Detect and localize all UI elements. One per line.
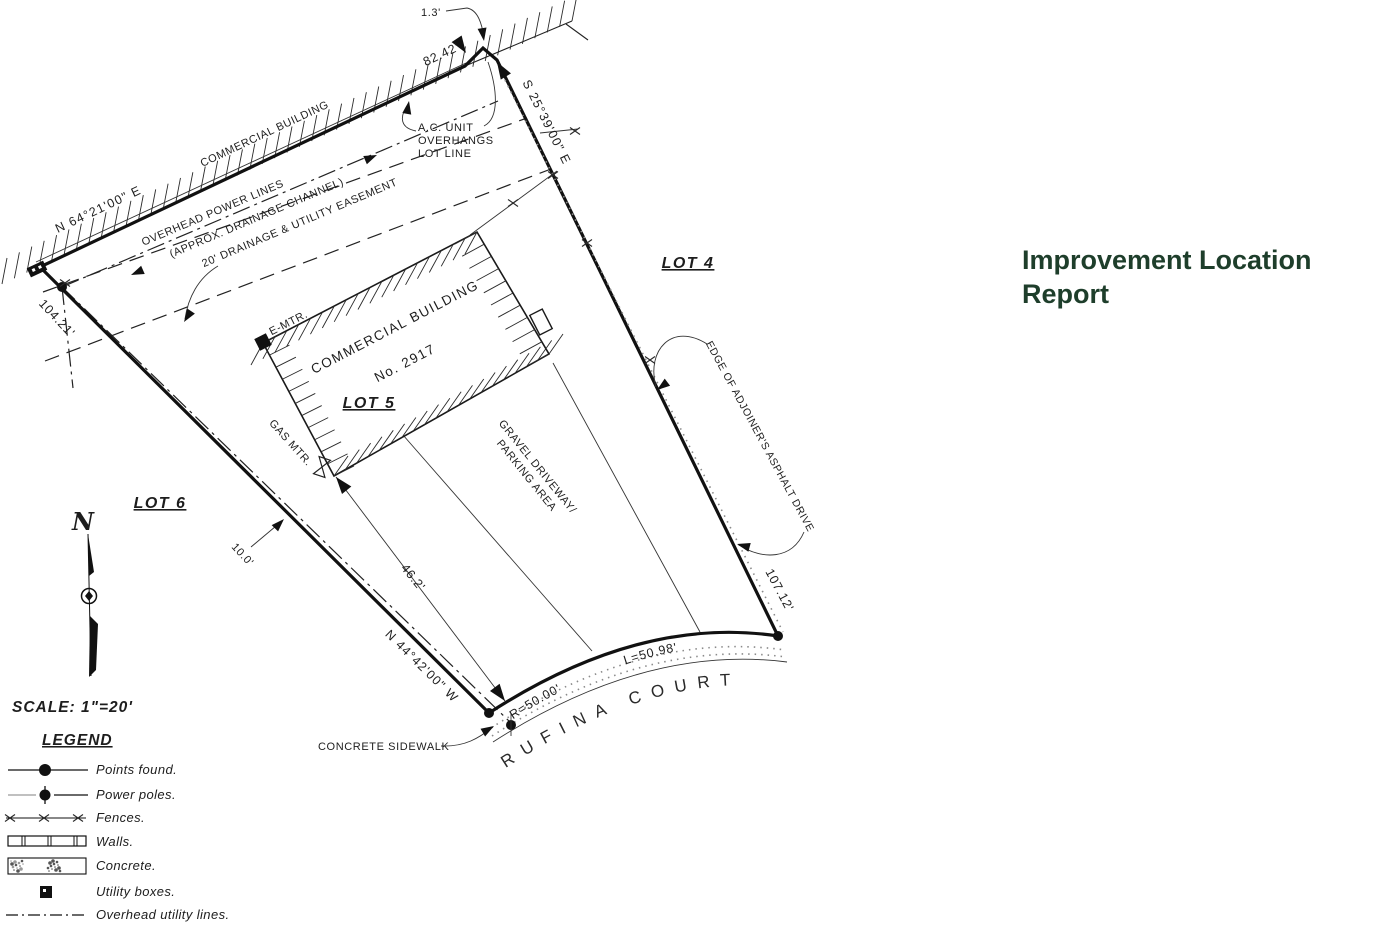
north-arrow: N — [71, 507, 98, 677]
lot5-label: LOT 5 — [343, 395, 396, 412]
legend-item-utility-boxes: Utility boxes. — [40, 884, 175, 899]
arrowhead — [657, 379, 670, 390]
dim-top-edge: 82.42' — [421, 40, 462, 69]
utility-box-icon — [27, 261, 48, 278]
legend-label: Walls. — [96, 834, 134, 849]
concrete-speckle — [57, 864, 59, 866]
concrete-speckle — [54, 868, 58, 872]
point-found-icon — [484, 708, 494, 718]
arrowhead — [402, 101, 411, 115]
arrowhead — [336, 477, 351, 494]
legend-label: Fences. — [96, 810, 145, 825]
concrete-speckle — [48, 861, 52, 865]
concrete-speckle — [21, 860, 24, 863]
plat-drawing: N 64°21'00" E COMMERCIAL BUILDING 82.42'… — [0, 0, 1010, 925]
legend-item-points-found: Points found. — [8, 762, 177, 777]
hatch-tick — [572, 0, 577, 21]
hatch-tick — [560, 1, 565, 27]
ac-unit-label-1: A.C. UNIT — [418, 122, 474, 134]
overhang-leader — [446, 8, 484, 38]
dim-left-edge: 104.21' — [36, 297, 78, 340]
legend-heading: LEGEND — [42, 732, 113, 749]
driveway-line-east — [553, 363, 700, 632]
concrete-speckle — [59, 870, 62, 873]
concrete-speckle — [57, 866, 61, 870]
arrowhead — [131, 266, 145, 275]
legend-label: Utility boxes. — [96, 884, 175, 899]
gas-meter-icon — [314, 457, 331, 478]
wall-line-extension — [465, 21, 572, 66]
concrete-speckle — [51, 868, 53, 870]
concrete-speckle — [13, 860, 17, 864]
concrete-speckle — [13, 869, 15, 871]
concrete-speckle — [51, 859, 55, 863]
concrete-speckle — [53, 863, 56, 866]
north-label: N — [71, 507, 95, 536]
dim-driveway: 46.2' — [398, 561, 428, 594]
bearing-bottom: N 44°42'00" W — [382, 627, 461, 705]
legend-item-walls: Walls. — [8, 834, 134, 849]
concrete-speckle — [19, 865, 21, 867]
driveway-line-west — [403, 435, 592, 651]
concrete-speckle — [18, 862, 21, 865]
arrowhead — [478, 27, 487, 41]
hatch-tick — [549, 334, 563, 354]
dim-overhang: 1.3' — [421, 7, 441, 19]
asphalt-leader-top — [654, 336, 707, 387]
svg-text:L=50.98': L=50.98' — [622, 640, 678, 667]
lot4-label: LOT 4 — [662, 255, 715, 272]
legend-item-overhead-lines: Overhead utility lines. — [6, 907, 229, 922]
concrete-speckle — [19, 867, 23, 871]
legend-label: Points found. — [96, 762, 177, 777]
hatch-tick — [76, 224, 81, 250]
legend-item-fences: Fences. — [5, 810, 145, 825]
hatch-tick — [547, 6, 552, 32]
concrete-speckle — [48, 870, 50, 872]
dim-right-edge: 107.12' — [762, 566, 796, 613]
page-title: Improvement Location Report — [1022, 244, 1352, 312]
concrete-speckle — [22, 863, 24, 865]
dim-offset: 10.0' — [229, 541, 256, 569]
scale-label: SCALE: 1"=20' — [12, 699, 133, 716]
asphalt-edge-label: EDGE OF ADJOINER'S ASPHALT DRIVE — [703, 339, 816, 534]
legend-item-power-poles: Power poles. — [8, 786, 176, 804]
legend-item-concrete: Concrete. — [8, 858, 156, 874]
concrete-speckle — [12, 866, 15, 869]
ac-unit-label-3: LOT LINE — [418, 148, 472, 160]
hatch-tick — [14, 252, 19, 278]
arrowhead — [363, 155, 377, 164]
legend-label: Power poles. — [96, 787, 176, 802]
curve-length-label: L=50.98' — [622, 640, 678, 667]
lot6-label: LOT 6 — [134, 495, 187, 512]
hatch-tick — [64, 229, 69, 255]
hatch-tick — [2, 258, 7, 284]
concrete-speckle — [10, 860, 12, 862]
arrowhead — [490, 684, 505, 701]
ac-unit-label-2: OVERHANGS — [418, 135, 494, 147]
concrete-speckle — [10, 862, 14, 866]
concrete-speckle — [56, 861, 59, 864]
concrete-speckle — [50, 865, 53, 868]
concrete-speckle — [15, 864, 18, 867]
sidewalk-label: CONCRETE SIDEWALK — [318, 741, 449, 753]
gravel-label-1: GRAVEL DRIVEWAY/ — [496, 418, 579, 516]
hatch-tick — [89, 218, 94, 244]
bearing-top: N 64°21'00" E — [53, 183, 143, 236]
concrete-speckle — [54, 866, 56, 868]
arrowhead — [497, 62, 511, 80]
legend-label: Overhead utility lines. — [96, 907, 229, 922]
hatch-tick — [52, 235, 57, 261]
arrowhead — [272, 519, 284, 531]
concrete-speckle — [47, 867, 50, 870]
concrete-speckle — [16, 867, 18, 869]
arrowhead — [737, 543, 751, 552]
legend-label: Concrete. — [96, 858, 156, 873]
wall-end-cap — [566, 24, 588, 40]
point-found-icon — [773, 631, 783, 641]
concrete-speckle — [16, 869, 20, 873]
improvement-location-report-page: N 64°21'00" E COMMERCIAL BUILDING 82.42'… — [0, 0, 1400, 925]
ac-unit-leader-right — [484, 62, 495, 126]
